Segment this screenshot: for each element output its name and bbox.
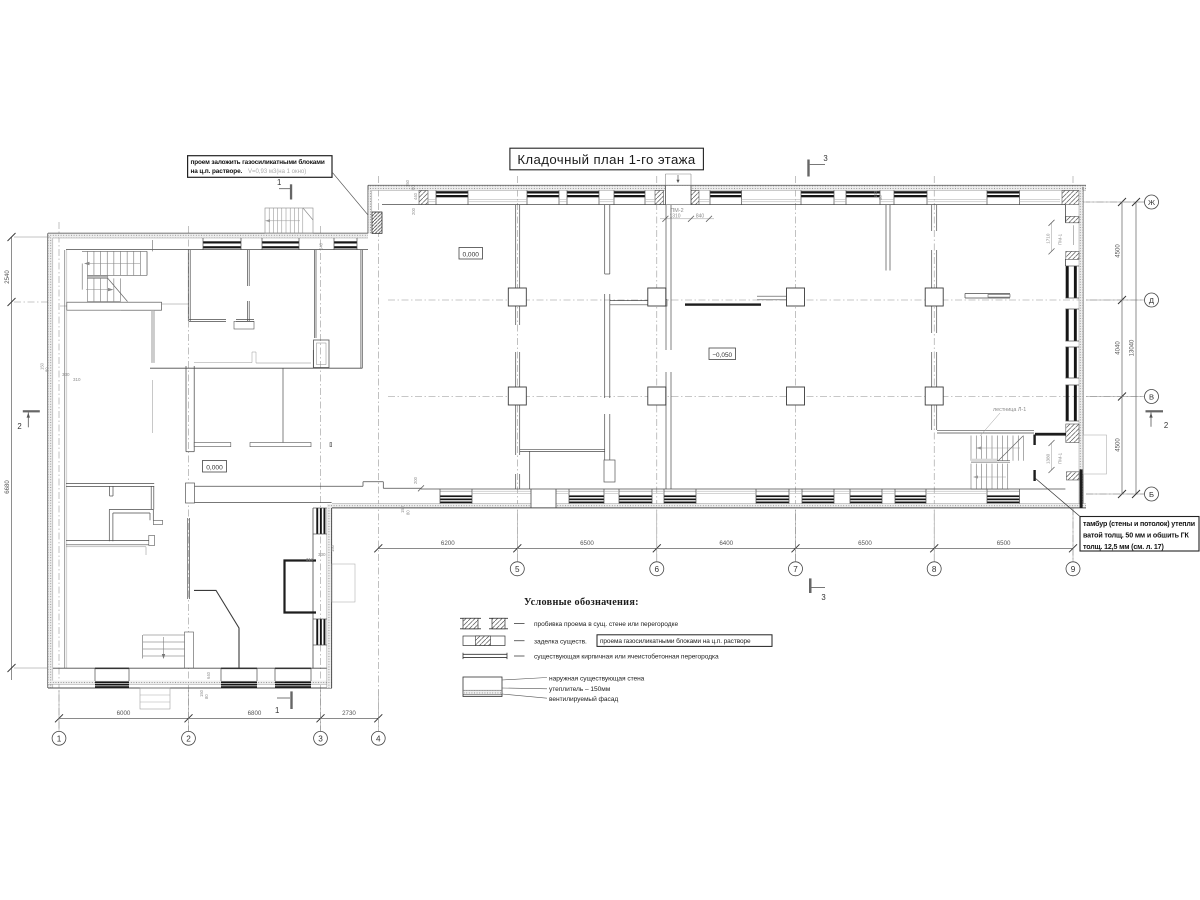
svg-text:заделка существ.: заделка существ. xyxy=(534,638,587,645)
svg-text:тамбур (стены и потолок) утепл: тамбур (стены и потолок) утепли xyxy=(1083,520,1195,528)
svg-text:1: 1 xyxy=(57,734,62,743)
svg-text:150: 150 xyxy=(330,544,335,552)
svg-text:6500: 6500 xyxy=(997,540,1011,547)
svg-text:4040: 4040 xyxy=(1116,341,1122,355)
svg-text:310: 310 xyxy=(306,557,314,562)
svg-text:6500: 6500 xyxy=(580,540,594,547)
svg-text:80: 80 xyxy=(411,185,416,190)
svg-text:Ж: Ж xyxy=(1148,198,1155,207)
svg-text:2: 2 xyxy=(17,422,21,431)
svg-text:проема газосиликатными блоками: проема газосиликатными блоками на ц.п. р… xyxy=(600,637,751,645)
svg-text:640: 640 xyxy=(319,242,324,250)
svg-text:Кладочный план 1-го этажа: Кладочный план 1-го этажа xyxy=(517,152,696,167)
svg-text:1: 1 xyxy=(275,706,279,715)
svg-text:6800: 6800 xyxy=(248,710,262,717)
svg-text:вентилируемый фасад: вентилируемый фасад xyxy=(549,695,618,703)
svg-text:ПМ-1: ПМ-1 xyxy=(1058,233,1063,245)
svg-text:2: 2 xyxy=(186,734,191,743)
svg-text:0,000: 0,000 xyxy=(206,464,223,471)
svg-text:V=0,93 м3(на 1 окно): V=0,93 м3(на 1 окно) xyxy=(248,169,306,175)
svg-text:13040: 13040 xyxy=(1130,339,1136,356)
svg-text:утеплитель – 150мм: утеплитель – 150мм xyxy=(549,686,611,693)
svg-text:1380: 1380 xyxy=(1046,453,1051,464)
svg-text:ватой толщ. 50 мм и обшить ГК: ватой толщ. 50 мм и обшить ГК xyxy=(1083,532,1190,540)
svg-text:6680: 6680 xyxy=(5,480,11,494)
svg-text:80: 80 xyxy=(204,694,209,699)
svg-text:1: 1 xyxy=(277,178,281,187)
svg-text:7: 7 xyxy=(793,565,798,574)
svg-text:150: 150 xyxy=(400,505,405,513)
svg-text:Б: Б xyxy=(1149,490,1154,499)
svg-text:9: 9 xyxy=(1071,565,1076,574)
svg-text:лестница Л-1: лестница Л-1 xyxy=(993,407,1026,413)
svg-text:ПМ-1: ПМ-1 xyxy=(1058,452,1063,464)
svg-text:330: 330 xyxy=(318,552,326,557)
svg-text:1710: 1710 xyxy=(1046,233,1051,244)
svg-text:6000: 6000 xyxy=(117,710,131,717)
svg-text:2: 2 xyxy=(1164,421,1168,430)
svg-text:существующая кирпичная или яче: существующая кирпичная или ячеистобетонн… xyxy=(534,653,719,661)
svg-text:6500: 6500 xyxy=(858,540,872,547)
svg-text:310: 310 xyxy=(73,377,81,382)
svg-text:0,000: 0,000 xyxy=(462,251,479,258)
svg-text:3: 3 xyxy=(318,734,323,743)
svg-text:на ц.п. растворе.: на ц.п. растворе. xyxy=(191,168,243,175)
svg-text:840: 840 xyxy=(696,214,705,220)
svg-text:5: 5 xyxy=(515,565,520,574)
svg-text:пробивка проема в сущ. стене: пробивка проема в сущ. стене или перегор… xyxy=(534,620,678,628)
svg-text:200: 200 xyxy=(411,207,416,215)
svg-text:6400: 6400 xyxy=(719,540,733,547)
svg-text:−0,050: −0,050 xyxy=(712,352,732,359)
svg-text:80: 80 xyxy=(878,195,883,200)
svg-text:640: 640 xyxy=(206,671,211,679)
svg-text:4500: 4500 xyxy=(1116,244,1122,258)
svg-text:330: 330 xyxy=(62,372,70,377)
svg-text:6200: 6200 xyxy=(441,540,455,547)
svg-text:наружная существующая стена: наружная существующая стена xyxy=(549,676,645,683)
svg-text:4: 4 xyxy=(376,734,381,743)
svg-text:4500: 4500 xyxy=(1116,438,1122,452)
svg-text:150: 150 xyxy=(405,179,410,187)
svg-text:3: 3 xyxy=(823,154,827,163)
svg-text:В: В xyxy=(1149,393,1154,402)
svg-text:200: 200 xyxy=(413,476,418,484)
svg-text:6: 6 xyxy=(655,565,660,574)
svg-text:80: 80 xyxy=(406,510,411,515)
svg-text:Условные обозначения:: Условные обозначения: xyxy=(524,597,639,608)
svg-text:440: 440 xyxy=(413,192,418,200)
svg-text:8: 8 xyxy=(932,565,937,574)
svg-text:Д: Д xyxy=(1149,296,1154,305)
svg-text:80: 80 xyxy=(45,367,50,372)
svg-text:2540: 2540 xyxy=(5,270,11,284)
svg-text:толщ. 12,5 мм (см. л. 17): толщ. 12,5 мм (см. л. 17) xyxy=(1083,543,1164,551)
svg-text:2730: 2730 xyxy=(342,710,356,717)
svg-text:проем заложить газосиликатными: проем заложить газосиликатными блоками xyxy=(191,158,325,166)
svg-text:3: 3 xyxy=(821,593,825,602)
